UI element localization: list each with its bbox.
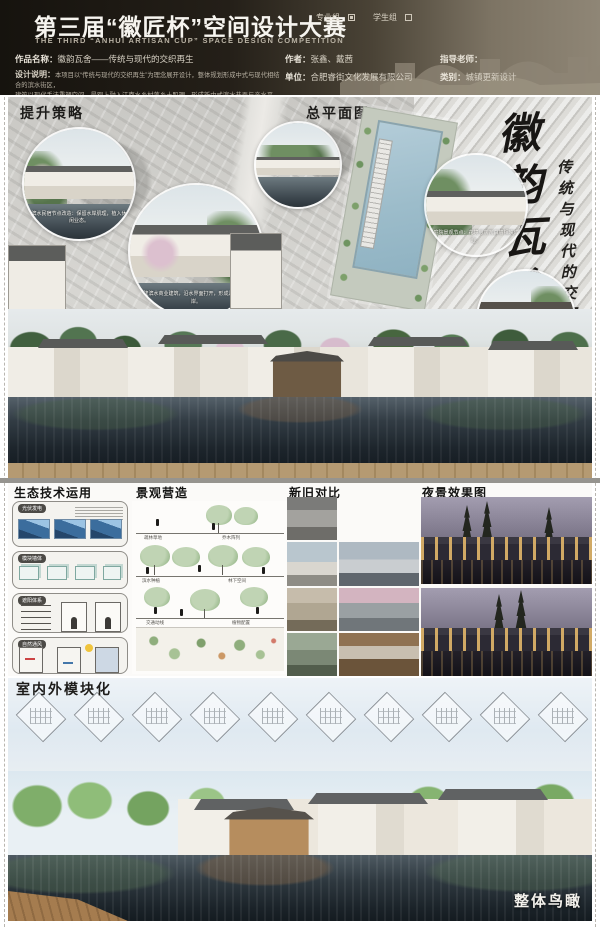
night-water: [421, 560, 592, 584]
roof: [38, 339, 128, 348]
author-label: 作者：: [285, 54, 311, 64]
module-unit: [75, 566, 95, 580]
sketch-caption: 滨水种植: [142, 578, 160, 584]
ventilation-diagram: [57, 647, 81, 673]
author-value: 张鑫、戴茜: [311, 54, 354, 64]
landscape-sketch-row: 交通动线 植物配置: [136, 587, 284, 625]
figure-sketch: [262, 567, 265, 574]
entry-group-row: 专业组 学生组: [316, 12, 412, 23]
eco-section-title: 生态技术运用: [14, 484, 92, 501]
new-render: [339, 497, 419, 540]
callout-waterfront-render: 滨水民宿节点改造：保留水岸肌理，植入休闲业态。: [22, 127, 136, 241]
eco-tech-column: 光伏发电 模块墙体 遮阳体系 自然通风: [12, 501, 128, 674]
eco-card-tag: 模块墙体: [18, 554, 46, 563]
tree-sketch: [208, 545, 238, 567]
tree-trunk: [154, 565, 155, 575]
category-label: 类别：: [440, 72, 466, 82]
desc-label: 设计说明：: [15, 70, 55, 79]
landscape-column: 疏林草地 乔木阵列 滨水种植 林下空间: [132, 501, 288, 674]
callout-pond-render: [254, 121, 342, 209]
ground-line: [136, 576, 284, 577]
tree-sketch: [172, 547, 200, 567]
roof: [438, 789, 548, 800]
solar-panel-photo: [90, 519, 122, 539]
category-value: 城镇更新设计: [466, 72, 517, 82]
tree-sketch: [144, 587, 170, 607]
old-photo: [287, 588, 337, 631]
unit-value: 合肥睿街文化发展有限公司: [311, 72, 413, 82]
pro-group-label: 专业组: [316, 12, 340, 23]
main-pond-render: [8, 309, 592, 478]
student-group-label: 学生组: [373, 12, 397, 23]
unit-row: 单位：合肥睿街文化发展有限公司: [285, 71, 413, 83]
roof: [308, 793, 428, 804]
module-axon-diagram: [364, 692, 414, 742]
section-diagram: [95, 602, 121, 632]
module-unit: [103, 566, 121, 580]
eco-card-shading: 遮阳体系: [12, 593, 128, 633]
cool-air-arrow: [63, 662, 73, 664]
callout-caption: 滨水民宿节点改造：保留水岸肌理，植入休闲业态。: [31, 211, 128, 226]
author-row: 作者：张鑫、戴茜: [285, 53, 353, 65]
tree-sketch: [240, 587, 268, 607]
strategy-section-title: 提升策略: [20, 103, 84, 123]
landscape-sketch-row: 滨水种植 林下空间: [136, 545, 284, 583]
roof: [368, 337, 468, 346]
side-building-render: [8, 245, 66, 315]
eco-card-solar: 光伏发电: [12, 501, 128, 547]
figure-sketch: [212, 523, 215, 530]
figure-sketch: [154, 607, 157, 614]
callout-caption: 庭院景观节点：花境与灰瓦白墙相映成趣。: [432, 230, 520, 245]
tree-trunk: [222, 565, 223, 575]
shading-diagram-lines: [21, 604, 51, 630]
ventilation-diagram: [19, 647, 43, 673]
module-axon-diagram: [16, 692, 66, 742]
old-photo: [287, 542, 337, 585]
sketch-caption: 植物配置: [232, 620, 250, 626]
solar-panel-photo: [54, 519, 86, 539]
module-unit: [19, 566, 39, 580]
advisor-label: 指导老师：: [440, 54, 483, 64]
landscape-sketch-row: 疏林草地 乔木阵列: [136, 505, 284, 541]
tree-sketch: [140, 545, 170, 567]
night-render-column: [421, 497, 592, 676]
sketch-caption: 林下空间: [228, 578, 246, 584]
landscape-section-title: 景观营造: [136, 484, 188, 501]
huizhou-roofline-silhouette-icon: [340, 35, 600, 95]
work-name-value: 徽韵瓦舍——传统与现代的交织再生: [58, 54, 194, 64]
overall-aerial-render: 整体鸟瞰: [8, 771, 592, 921]
night-render-2: [421, 588, 592, 676]
module-axon-diagram: [248, 692, 298, 742]
competition-poster: 第三届“徽匠杯”空间设计大赛 THE THIRD “ANHUI ARTISAN …: [0, 0, 600, 931]
annotation-text-block: [75, 506, 123, 520]
desc-line2: 建筑以现代手法重塑空间，景观上融入江南水乡村落乡土肌理，形成新中式滨水巷弄与亲水…: [15, 92, 273, 95]
night-render-1: [421, 497, 592, 584]
analysis-band: 生态技术运用 景观营造 新旧对比 夜景效果图 光伏发电 模块墙体 遮阳体系: [8, 483, 592, 676]
unit-label: 单位：: [285, 72, 311, 82]
warm-air-arrow: [25, 658, 35, 660]
category-row: 类别：城镇更新设计: [440, 71, 517, 83]
work-name-row: 作品名称：徽韵瓦舍——传统与现代的交织再生: [15, 53, 194, 65]
tree-sketch: [190, 589, 220, 611]
left-edge-dashes: [4, 97, 5, 927]
ventilation-diagram: [95, 647, 119, 673]
module-axon-diagram: [306, 692, 356, 742]
landscape-plan-sketch: [136, 627, 284, 671]
wooden-deck: [8, 463, 592, 478]
callout-building: [256, 157, 340, 175]
ground-line: [136, 618, 284, 619]
figure-sketch: [198, 565, 201, 572]
tree-sketch: [234, 507, 258, 525]
callout-water: [256, 177, 340, 207]
lit-building-row: [421, 628, 592, 651]
right-edge-dashes: [595, 97, 596, 927]
tree-trunk: [218, 523, 219, 533]
desc-line1: 本项目以“传统与现代的交织再生”为理念展开设计，整体规划形成中式与现代相结合的滨…: [15, 72, 280, 89]
sketch-caption: 疏林草地: [144, 535, 162, 541]
module-axon-diagram: [190, 692, 240, 742]
figure-sketch: [146, 567, 149, 574]
module-unit: [47, 566, 67, 580]
pro-group-checkbox: [348, 14, 355, 21]
roof: [194, 799, 294, 810]
callout-building: [426, 191, 526, 225]
callout-blossoms: [141, 230, 181, 276]
aerial-view-label: 整体鸟瞰: [514, 890, 582, 911]
old-new-comparison-grid: [287, 497, 419, 676]
pond-water: [8, 397, 592, 465]
module-axon-diagram: [74, 692, 124, 742]
section-diagram: [61, 602, 87, 632]
advisor-row: 指导老师：: [440, 53, 483, 65]
lit-building-row: [421, 537, 592, 560]
sun-icon: [85, 644, 93, 652]
modules-section-title: 室内外模块化: [16, 679, 112, 699]
modules-and-aerial-band: 室内外模块化 整体鸟瞰: [8, 678, 592, 927]
callout-building: [24, 166, 134, 199]
tree-sketch: [206, 505, 232, 525]
tree-trunk: [204, 609, 205, 618]
module-axon-diagram: [422, 692, 472, 742]
module-axon-diagram: [132, 692, 182, 742]
roof: [158, 335, 268, 344]
header-band: 第三届“徽匠杯”空间设计大赛 THE THIRD “ANHUI ARTISAN …: [0, 0, 600, 95]
ground-line: [136, 533, 284, 534]
old-photo: [287, 497, 337, 540]
old-photo: [287, 633, 337, 676]
new-render: [339, 542, 419, 585]
module-axon-diagram: [538, 692, 588, 742]
work-name-label: 作品名称：: [15, 54, 58, 64]
callout-courtyard-render: 庭院景观节点：花境与灰瓦白墙相映成趣。: [424, 153, 528, 257]
student-group-checkbox: [405, 14, 412, 21]
module-axon-diagram: [480, 692, 530, 742]
competition-title-en: THE THIRD “ANHUI ARTISAN CUP” SPACE DESI…: [35, 36, 344, 45]
sketch-caption: 交通动线: [146, 620, 164, 626]
tree-sketch: [242, 547, 270, 567]
main-panel: 提升策略 总平面图 徽韵瓦舍 传统与现代的交织再生 滨水民宿节点改造：保留水岸肌…: [8, 97, 592, 478]
new-render: [339, 633, 419, 676]
eco-card-tag: 光伏发电: [18, 504, 46, 513]
night-water: [421, 651, 592, 676]
eco-card-modules: 模块墙体: [12, 551, 128, 589]
solar-panel-photo: [18, 519, 50, 539]
sketch-caption: 乔木阵列: [222, 535, 240, 541]
side-building-render: [230, 233, 282, 309]
figure-sketch: [180, 609, 183, 616]
roof: [488, 341, 578, 350]
eco-card-ventilation: 自然通风: [12, 637, 128, 674]
design-description: 设计说明：本项目以“传统与现代的交织再生”为理念展开设计，整体规划形成中式与现代…: [15, 69, 285, 95]
central-pavilion: [270, 351, 344, 399]
figure-sketch: [256, 607, 259, 614]
figure-sketch: [156, 519, 159, 526]
new-render: [339, 588, 419, 631]
